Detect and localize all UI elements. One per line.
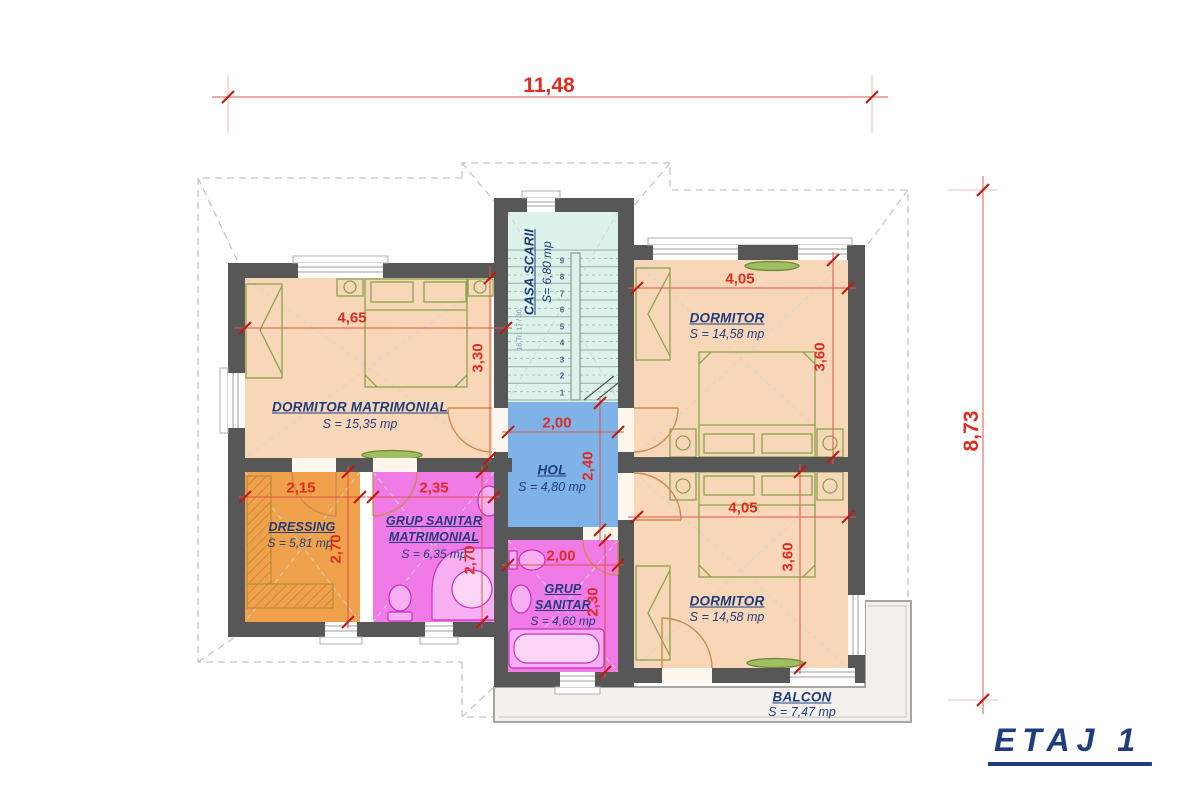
room-label-grup-sanitar-1: GRUP (545, 582, 582, 596)
room-label-dormitor-matrimonial: DORMITOR MATRIMONIAL (272, 400, 448, 415)
room-area-dormitor-matrimonial: S = 15,35 mp (323, 417, 398, 431)
floor-plan-canvas: 11,48 8,73 DORMITOR MATRIMONIAL S = 15,3… (0, 0, 1200, 800)
plant (745, 262, 799, 271)
stair-number: 5 (560, 323, 564, 332)
room-label-dormitor-nord: DORMITOR (690, 311, 765, 326)
dim-dn-height: 3,60 (812, 342, 829, 371)
room-label-dressing: DRESSING (269, 520, 336, 534)
room-area-hol: S = 4,80 mp (518, 480, 586, 494)
dim-dm-width: 4,65 (337, 310, 366, 327)
dim-hol-width: 2,00 (542, 415, 571, 432)
dim-dressing-width: 2,15 (286, 480, 315, 497)
stair-number: 4 (560, 339, 564, 348)
stair-number: 9 (560, 257, 564, 266)
sink (511, 585, 531, 613)
room-label-hol: HOL (537, 463, 566, 478)
room-label-casa-scarii: CASA SCARII (522, 229, 537, 315)
stair-number: 3 (560, 356, 564, 365)
stair-number: 7 (560, 290, 564, 299)
stair-number: 1 (560, 389, 564, 398)
overall-height-dimension: 8,73 (960, 411, 984, 452)
room-area-dressing: S = 5,81 mp (267, 536, 332, 550)
floor-plan-drawing (0, 0, 1200, 800)
room-label-grup-sanitar-matrimonial-1: GRUP SANITAR (386, 514, 482, 528)
overall-width-dimension: 11,48 (523, 74, 574, 98)
dim-dm-height: 3,30 (470, 343, 487, 372)
stair-number: 8 (560, 273, 564, 282)
stair-rail (571, 253, 580, 400)
dim-dressing-height: 2,70 (328, 534, 345, 563)
floor-title: ETAJ 1 (988, 722, 1152, 766)
room-area-dormitor-nord: S = 14,58 mp (690, 327, 765, 341)
dim-gs-height: 2,30 (585, 587, 602, 616)
stair-note: 18 Tr: 17 / 30 (517, 309, 524, 350)
dim-ds-width: 4,05 (728, 500, 757, 517)
room-area-balcon: S = 7,47 mp (768, 705, 836, 719)
dim-hol-height: 2,40 (580, 451, 597, 480)
plant (747, 659, 803, 668)
stair-number: 6 (560, 306, 564, 315)
room-area-grup-sanitar-matrimonial: S = 6,35 mp (401, 547, 466, 561)
dim-gsm-height: 2,70 (462, 545, 479, 574)
room-area-dormitor-sud: S = 14,58 mp (690, 610, 765, 624)
room-area-casa-scarii: S= 6,80 mp (540, 241, 554, 303)
room-label-grup-sanitar-2: SANITAR (535, 598, 591, 612)
stair-number: 2 (560, 372, 564, 381)
dim-gsm-width: 2,35 (419, 480, 448, 497)
room-label-grup-sanitar-matrimonial-2: MATRIMONIAL (389, 530, 479, 544)
dim-dn-width: 4,05 (725, 271, 754, 288)
toilet (519, 550, 545, 570)
dim-gs-width: 2,00 (546, 548, 575, 565)
toilet (389, 585, 411, 611)
room-label-balcon: BALCON (773, 690, 832, 705)
room-label-dormitor-sud: DORMITOR (690, 594, 765, 609)
dim-ds-height: 3,60 (780, 542, 797, 571)
